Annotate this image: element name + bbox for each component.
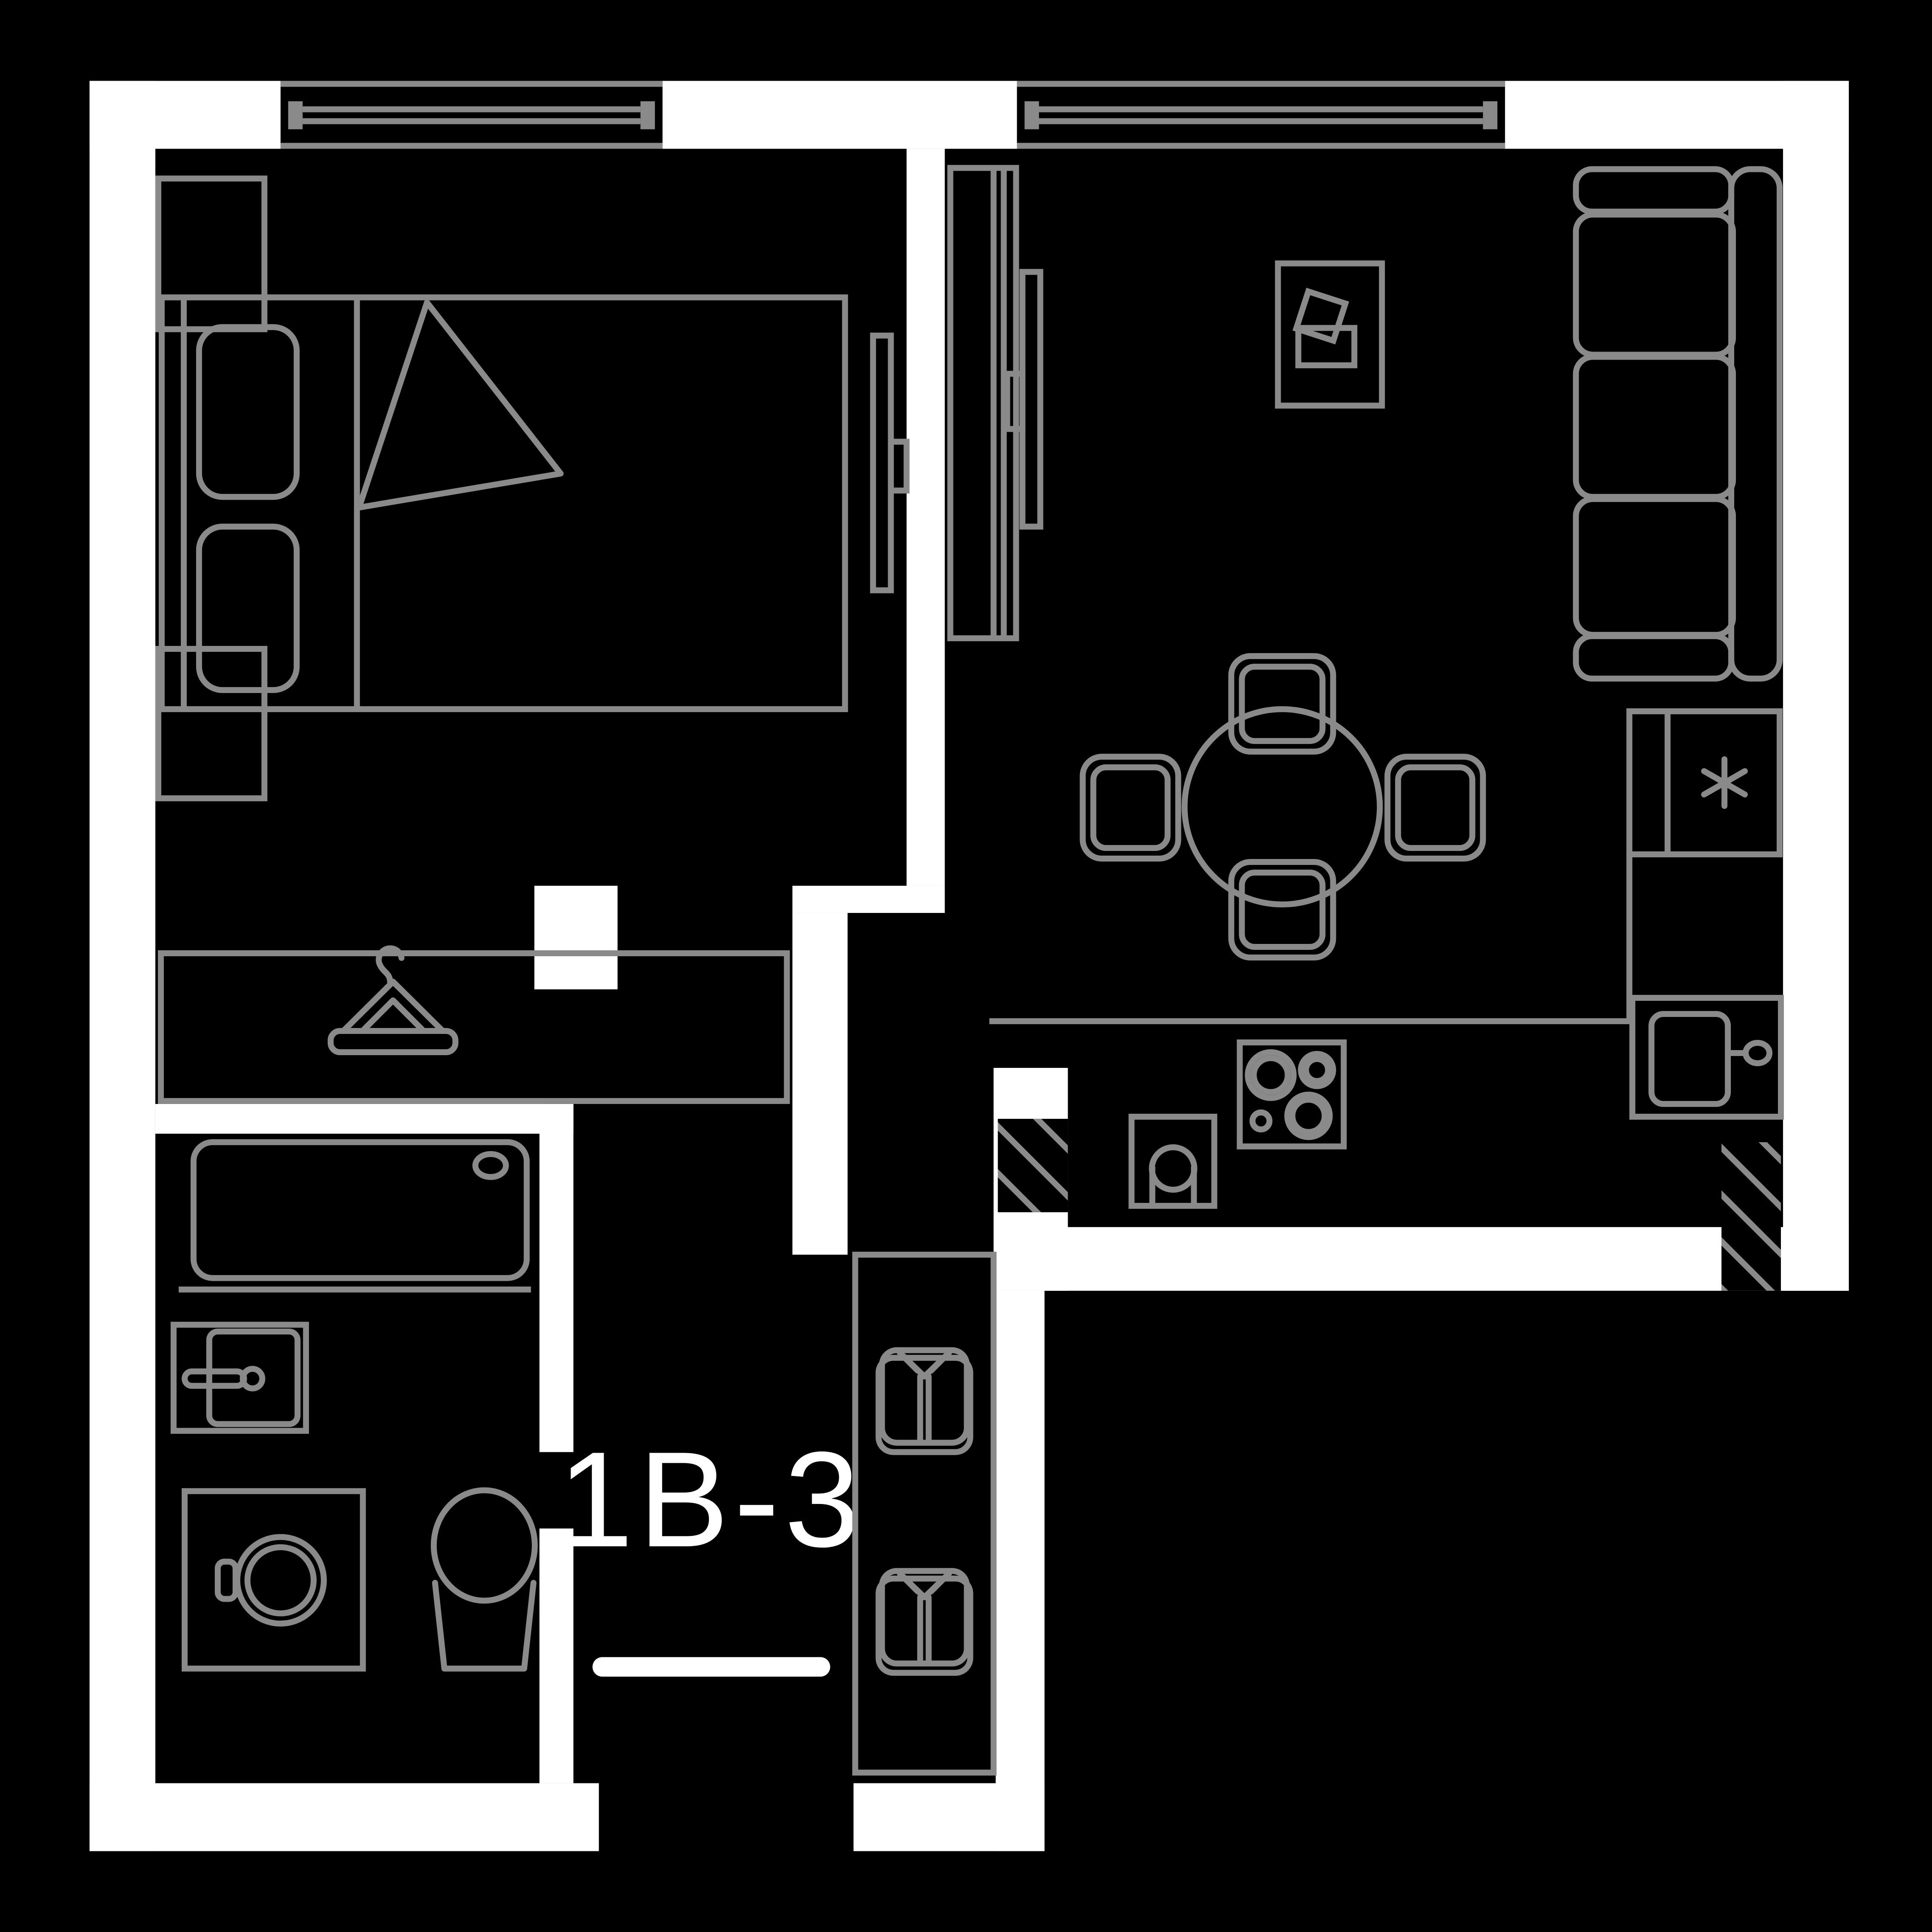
wall-bathroom-right-upper — [539, 1104, 573, 1452]
window-glazing-line — [302, 106, 640, 112]
hatch-icon — [1721, 1142, 1781, 1291]
window-end-cap — [288, 101, 302, 129]
shaft-left — [998, 1119, 1068, 1212]
window-outer-line — [1017, 81, 1505, 87]
window-glazing-line — [1039, 106, 1483, 112]
floor-plan: 1B-3 — [0, 0, 1932, 1932]
unit-label: 1B-3 — [557, 1423, 865, 1575]
window-inner-line — [1017, 143, 1505, 149]
wall-bathroom-top — [155, 1104, 573, 1134]
wall-top-left — [89, 81, 280, 149]
wall-bottom-left — [89, 1783, 599, 1851]
window-glazing-line — [302, 118, 640, 124]
wall-bedroom-living-divider — [906, 149, 945, 886]
wall-left — [89, 81, 155, 1851]
wall-top-middle — [662, 81, 1017, 149]
wall-right — [1783, 81, 1849, 1290]
window-outer-line — [280, 81, 662, 87]
shaft-right — [1721, 1142, 1781, 1291]
window-glazing-line — [1039, 118, 1483, 124]
wall-bedroom-door-jamb — [534, 886, 617, 989]
window-end-cap — [1024, 101, 1039, 129]
unit-label-underline — [592, 1657, 830, 1677]
window-inner-line — [280, 143, 662, 149]
hatch-icon — [998, 1119, 1068, 1212]
wall-bottom-right — [853, 1783, 1044, 1851]
wall-wardrobe-right-lower — [996, 1291, 1044, 1851]
wall-kitchen-south — [993, 1227, 1849, 1291]
wall-closet-hall — [792, 913, 847, 1255]
floor-plan-page: 1B-3 — [0, 0, 1932, 1932]
wall-hall-top — [792, 886, 945, 913]
window-end-cap — [1483, 101, 1497, 129]
window-end-cap — [640, 101, 655, 129]
